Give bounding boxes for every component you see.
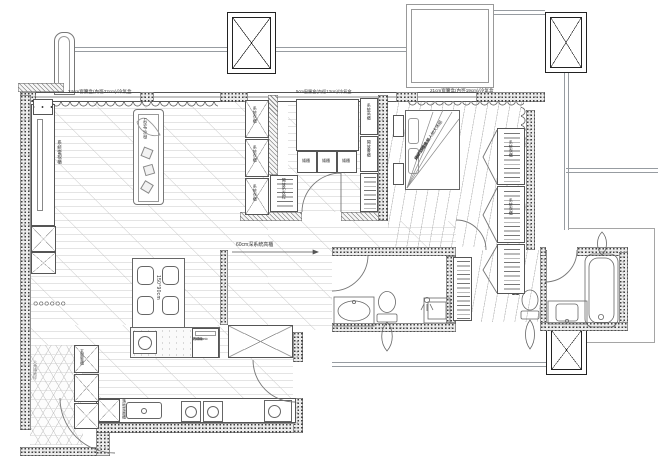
nightstand-2: [393, 163, 404, 185]
dining-chair-1: [137, 266, 154, 285]
study-hanger-rod: [364, 177, 376, 210]
low-cabinet-label-2: 矮櫃: [322, 159, 330, 164]
linen-closet-rod: [457, 261, 470, 319]
bay-inner: [411, 9, 489, 83]
appliance-tall-cabinet: [98, 399, 120, 422]
study-cab-label-1: 系統高櫃: [366, 103, 371, 120]
appliance-tall-label: 落地電器櫃: [122, 399, 127, 420]
study-bed: [296, 99, 359, 151]
bath1-toilet-bowl: [379, 292, 396, 313]
bath1-fixtures: [334, 292, 450, 352]
speaker-box: [33, 99, 53, 115]
wall-master-right: [526, 110, 535, 250]
dining-chair-3: [162, 266, 179, 285]
bath1-faucet: [352, 300, 355, 303]
dishwasher: [192, 328, 219, 358]
curtain-living: [34, 102, 218, 108]
dining-table-size: 150*90cm: [155, 275, 161, 300]
building-edge-right: [564, 72, 569, 230]
linen-closet: [453, 257, 472, 321]
wardrobe-label-2: 系統衣櫃: [252, 145, 257, 162]
shaft-top-right: [545, 12, 587, 73]
building-edge-bottom: [332, 362, 546, 367]
bath1-toilet-tank: [377, 314, 397, 322]
wall-dining-corridor: [220, 250, 228, 325]
side-cabinet-1: [31, 226, 56, 252]
fridge-box: [228, 325, 293, 358]
wall-pier-2: [140, 92, 154, 102]
floor-corridor: [268, 221, 332, 330]
railing-top-right: [492, 10, 545, 15]
shaft-top-left-x: [232, 17, 271, 69]
shaft-bottom-right: [546, 325, 587, 375]
wall-living-study: [268, 95, 278, 175]
bed-pillow-1: [408, 118, 419, 144]
wall-study-master: [378, 95, 388, 221]
hob-left-burner: [185, 406, 197, 418]
corridor-note: 60cm深系統高櫃: [236, 242, 273, 248]
low-cabinet-label-1: 矮櫃: [302, 159, 310, 164]
master-wardrobe-label-1: 系統衣櫃: [508, 140, 513, 157]
wall-left: [20, 95, 31, 430]
tv-screen: [37, 119, 43, 211]
curtain-box-label-left: 24cm窗簾盒(內徑22cm)/冷氣盒: [68, 89, 132, 95]
shoe-cabinet-1: [74, 345, 99, 373]
shower-spray: [421, 304, 433, 311]
study-cab-label-2: 開放書櫃: [366, 140, 371, 157]
open-hanger-label: 開放吊衣桿: [281, 178, 286, 200]
curtain-box-label-mid: 5cm窗簾盒(內徑13cm)/冷氣盒: [296, 89, 352, 94]
balcony-sill: [18, 83, 64, 92]
curtain-master: [408, 101, 524, 107]
wardrobe-label-3: 系統衣櫃: [252, 184, 257, 201]
side-cabinet-2: [31, 252, 56, 274]
master-wardrobe-3: [497, 244, 525, 294]
building-edge-east: [566, 168, 658, 173]
shower-floor-in: [428, 302, 446, 319]
oven-door-circle: [268, 405, 281, 418]
dishwasher-panel: [195, 331, 216, 336]
hob-right: [203, 401, 223, 422]
shaft-top-right-x: [550, 17, 582, 68]
wall-mbath-left: [540, 250, 547, 331]
sofa-label: L型布沙發: [143, 118, 148, 139]
low-cabinet-label-3: 矮櫃: [342, 159, 350, 164]
dining-chair-2: [137, 296, 154, 315]
sink-faucet: [141, 408, 147, 414]
shoe-cabinet-label: 玄關鞋櫃: [80, 349, 85, 365]
bath1-vanity: [334, 297, 374, 326]
wall-bath1-top: [332, 247, 456, 256]
wall-kitchen-right-a: [293, 332, 303, 362]
wall-mbath-bottom: [540, 322, 628, 331]
tv-cabinet: [31, 104, 55, 226]
study-hanger: [360, 173, 378, 212]
wardrobe-label-1: 系統衣櫃: [252, 106, 257, 123]
wall-mbath-right: [619, 252, 628, 331]
wall-pier-3: [220, 92, 248, 102]
cooktop-burner: [138, 336, 152, 350]
shoe-cabinet-2: [74, 374, 99, 402]
shoe-cabinet-3: [74, 403, 99, 429]
hob-right-burner: [207, 406, 219, 418]
floor-plan: 24cm窗簾盒(內徑22cm)/冷氣盒 5cm窗簾盒(內徑13cm)/冷氣盒 2…: [0, 0, 660, 465]
kitchen-sink: [126, 402, 162, 419]
wall-kitchen-bottom: [96, 423, 298, 433]
wall-mbath-top-a: [540, 247, 546, 256]
radiator: [33, 300, 66, 307]
bath1-sink: [338, 301, 370, 321]
oven: [264, 400, 292, 422]
tv-wall-label: 系統電視櫃: [57, 140, 63, 165]
master-wardrobe-rod-3: [504, 249, 520, 291]
curtain-box-label-right: 21cm窗簾盒(內徑19cm)/冷氣盒: [430, 88, 494, 94]
wall-entry-bottom: [20, 447, 98, 456]
nightstand-1: [393, 115, 404, 137]
shaft-top-left: [227, 12, 276, 74]
master-wardrobe-label-2: 系統衣櫃: [508, 198, 513, 215]
island-cooktop: [133, 331, 157, 354]
bath1-door-arc: [332, 255, 368, 291]
mtoilet-pivot-door: [526, 320, 535, 349]
shaft-bottom-right-x: [551, 330, 582, 370]
shower-head: [424, 297, 429, 302]
hex-tile-label: 六角磚地坪: [33, 360, 38, 381]
dining-chair-4: [162, 296, 179, 315]
hob-left: [181, 401, 201, 422]
dishwasher-label-line3: W45cm: [193, 337, 204, 341]
wall-bath1-bottom: [332, 323, 456, 332]
